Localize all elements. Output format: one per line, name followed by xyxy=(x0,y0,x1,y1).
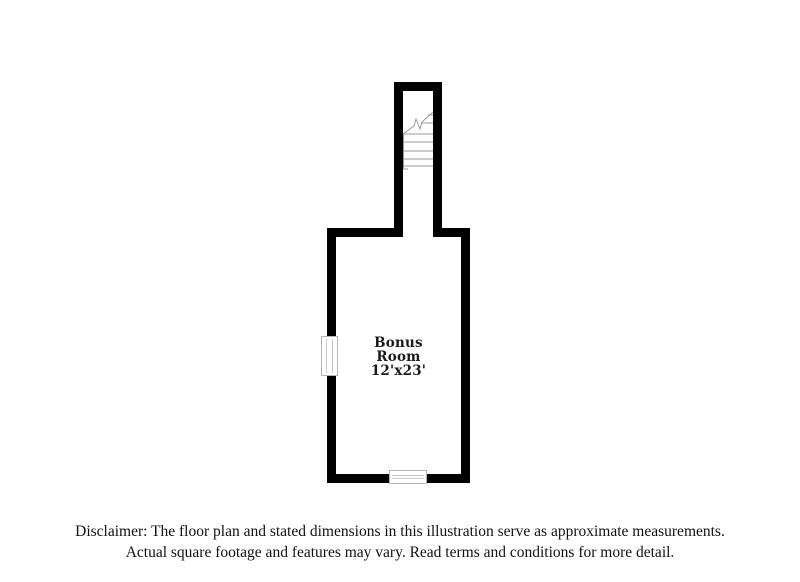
room-top-wall-left xyxy=(327,228,403,237)
window-icon xyxy=(389,470,427,484)
room-dimensions: 12'x23' xyxy=(336,364,461,378)
corridor-left-wall xyxy=(394,82,403,233)
window-pane xyxy=(326,339,333,373)
disclaimer-line2: Actual square footage and features may v… xyxy=(0,542,800,563)
room-name-line1: Bonus xyxy=(336,336,461,350)
disclaimer-text: Disclaimer: The floor plan and stated di… xyxy=(0,521,800,563)
disclaimer-line1: Disclaimer: The floor plan and stated di… xyxy=(0,521,800,542)
room-label: Bonus Room 12'x23' xyxy=(336,336,461,378)
room-name-line2: Room xyxy=(336,350,461,364)
window-pane xyxy=(392,475,424,479)
corridor-right-wall xyxy=(433,82,442,233)
stairs-icon xyxy=(403,91,433,171)
floor-plan-page: Bonus Room 12'x23' Disclaimer: The floor… xyxy=(0,0,800,582)
room-right-wall xyxy=(461,228,470,483)
